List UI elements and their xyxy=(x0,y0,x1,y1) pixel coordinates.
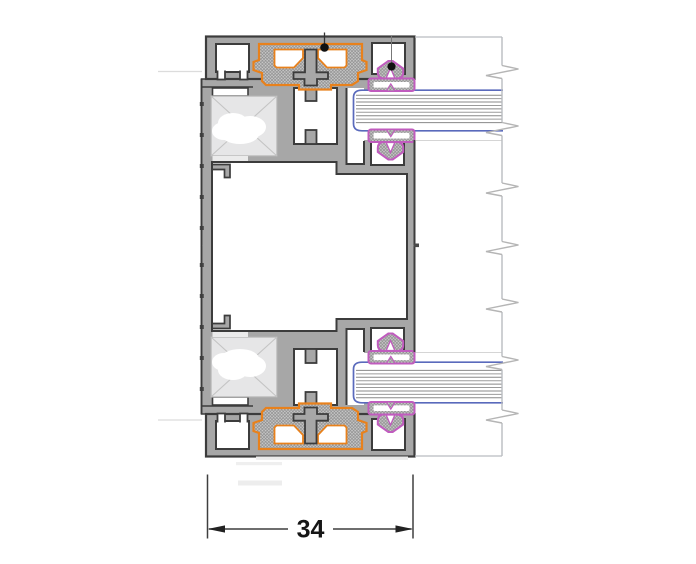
svg-text:34: 34 xyxy=(297,516,325,544)
